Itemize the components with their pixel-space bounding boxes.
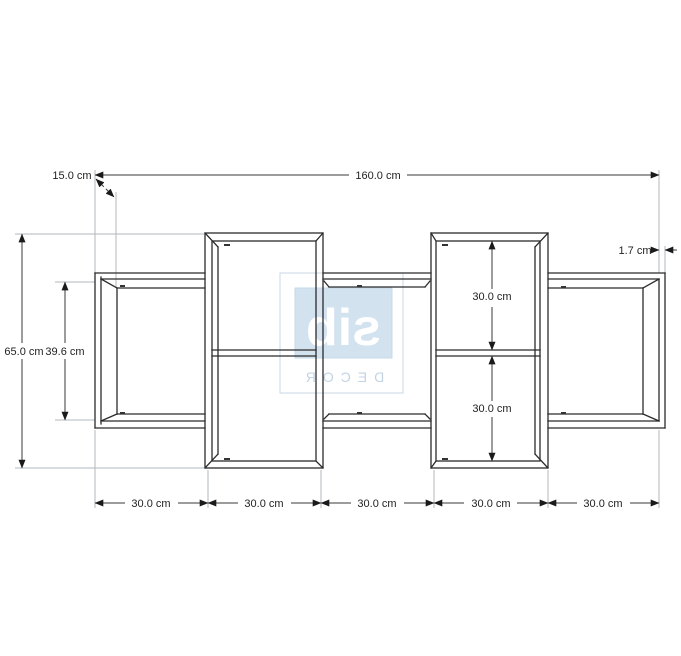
bottom-width-label-4: 30.0 cm	[471, 498, 510, 510]
lower-compartment-label: 30.0 cm	[472, 403, 511, 415]
depth-label: 15.0 cm	[52, 170, 91, 182]
bottom-width-segment-3: 30.0 cm	[321, 498, 434, 510]
dimension-side-inner-height: 39.6 cm	[45, 282, 84, 420]
total-height-label: 65.0 cm	[4, 346, 43, 358]
bottom-width-label-3: 30.0 cm	[357, 498, 396, 510]
dimension-total-height: 65.0 cm	[4, 234, 43, 468]
right-open-shelf	[548, 273, 665, 428]
side-inner-height-label: 39.6 cm	[45, 346, 84, 358]
bottom-width-label-1: 30.0 cm	[131, 498, 170, 510]
dimension-bottom-widths: 30.0 cm 30.0 cm 30.0 cm 30.0 cm 30.0 cm	[95, 498, 659, 510]
left-tall-box	[205, 233, 323, 468]
dimension-upper-compartment: 30.0 cm	[472, 241, 511, 350]
shelf-dimension-drawing: sib DECOR	[0, 0, 681, 656]
dimension-panel-thickness: 1.7 cm	[618, 245, 677, 257]
dimension-lower-compartment: 30.0 cm	[472, 356, 511, 461]
technical-drawing-canvas: sib DECOR	[0, 0, 681, 656]
dimension-depth: 15.0 cm	[52, 170, 114, 197]
watermark-brand-text: sib	[306, 299, 381, 357]
watermark-logo: sib DECOR	[280, 273, 403, 393]
bottom-width-label-5: 30.0 cm	[583, 498, 622, 510]
total-width-label: 160.0 cm	[355, 170, 400, 182]
bottom-width-label-2: 30.0 cm	[244, 498, 283, 510]
right-tall-box	[431, 233, 548, 468]
bottom-width-segment-4: 30.0 cm	[434, 498, 548, 510]
upper-compartment-label: 30.0 cm	[472, 291, 511, 303]
bottom-width-segment-5: 30.0 cm	[548, 498, 659, 510]
dimension-total-width: 160.0 cm	[95, 170, 659, 182]
panel-thickness-label: 1.7 cm	[618, 245, 651, 257]
left-open-shelf	[95, 273, 205, 428]
watermark-sub-text: DECOR	[299, 369, 385, 385]
bottom-width-segment-1: 30.0 cm	[95, 498, 208, 510]
bottom-width-segment-2: 30.0 cm	[208, 498, 321, 510]
